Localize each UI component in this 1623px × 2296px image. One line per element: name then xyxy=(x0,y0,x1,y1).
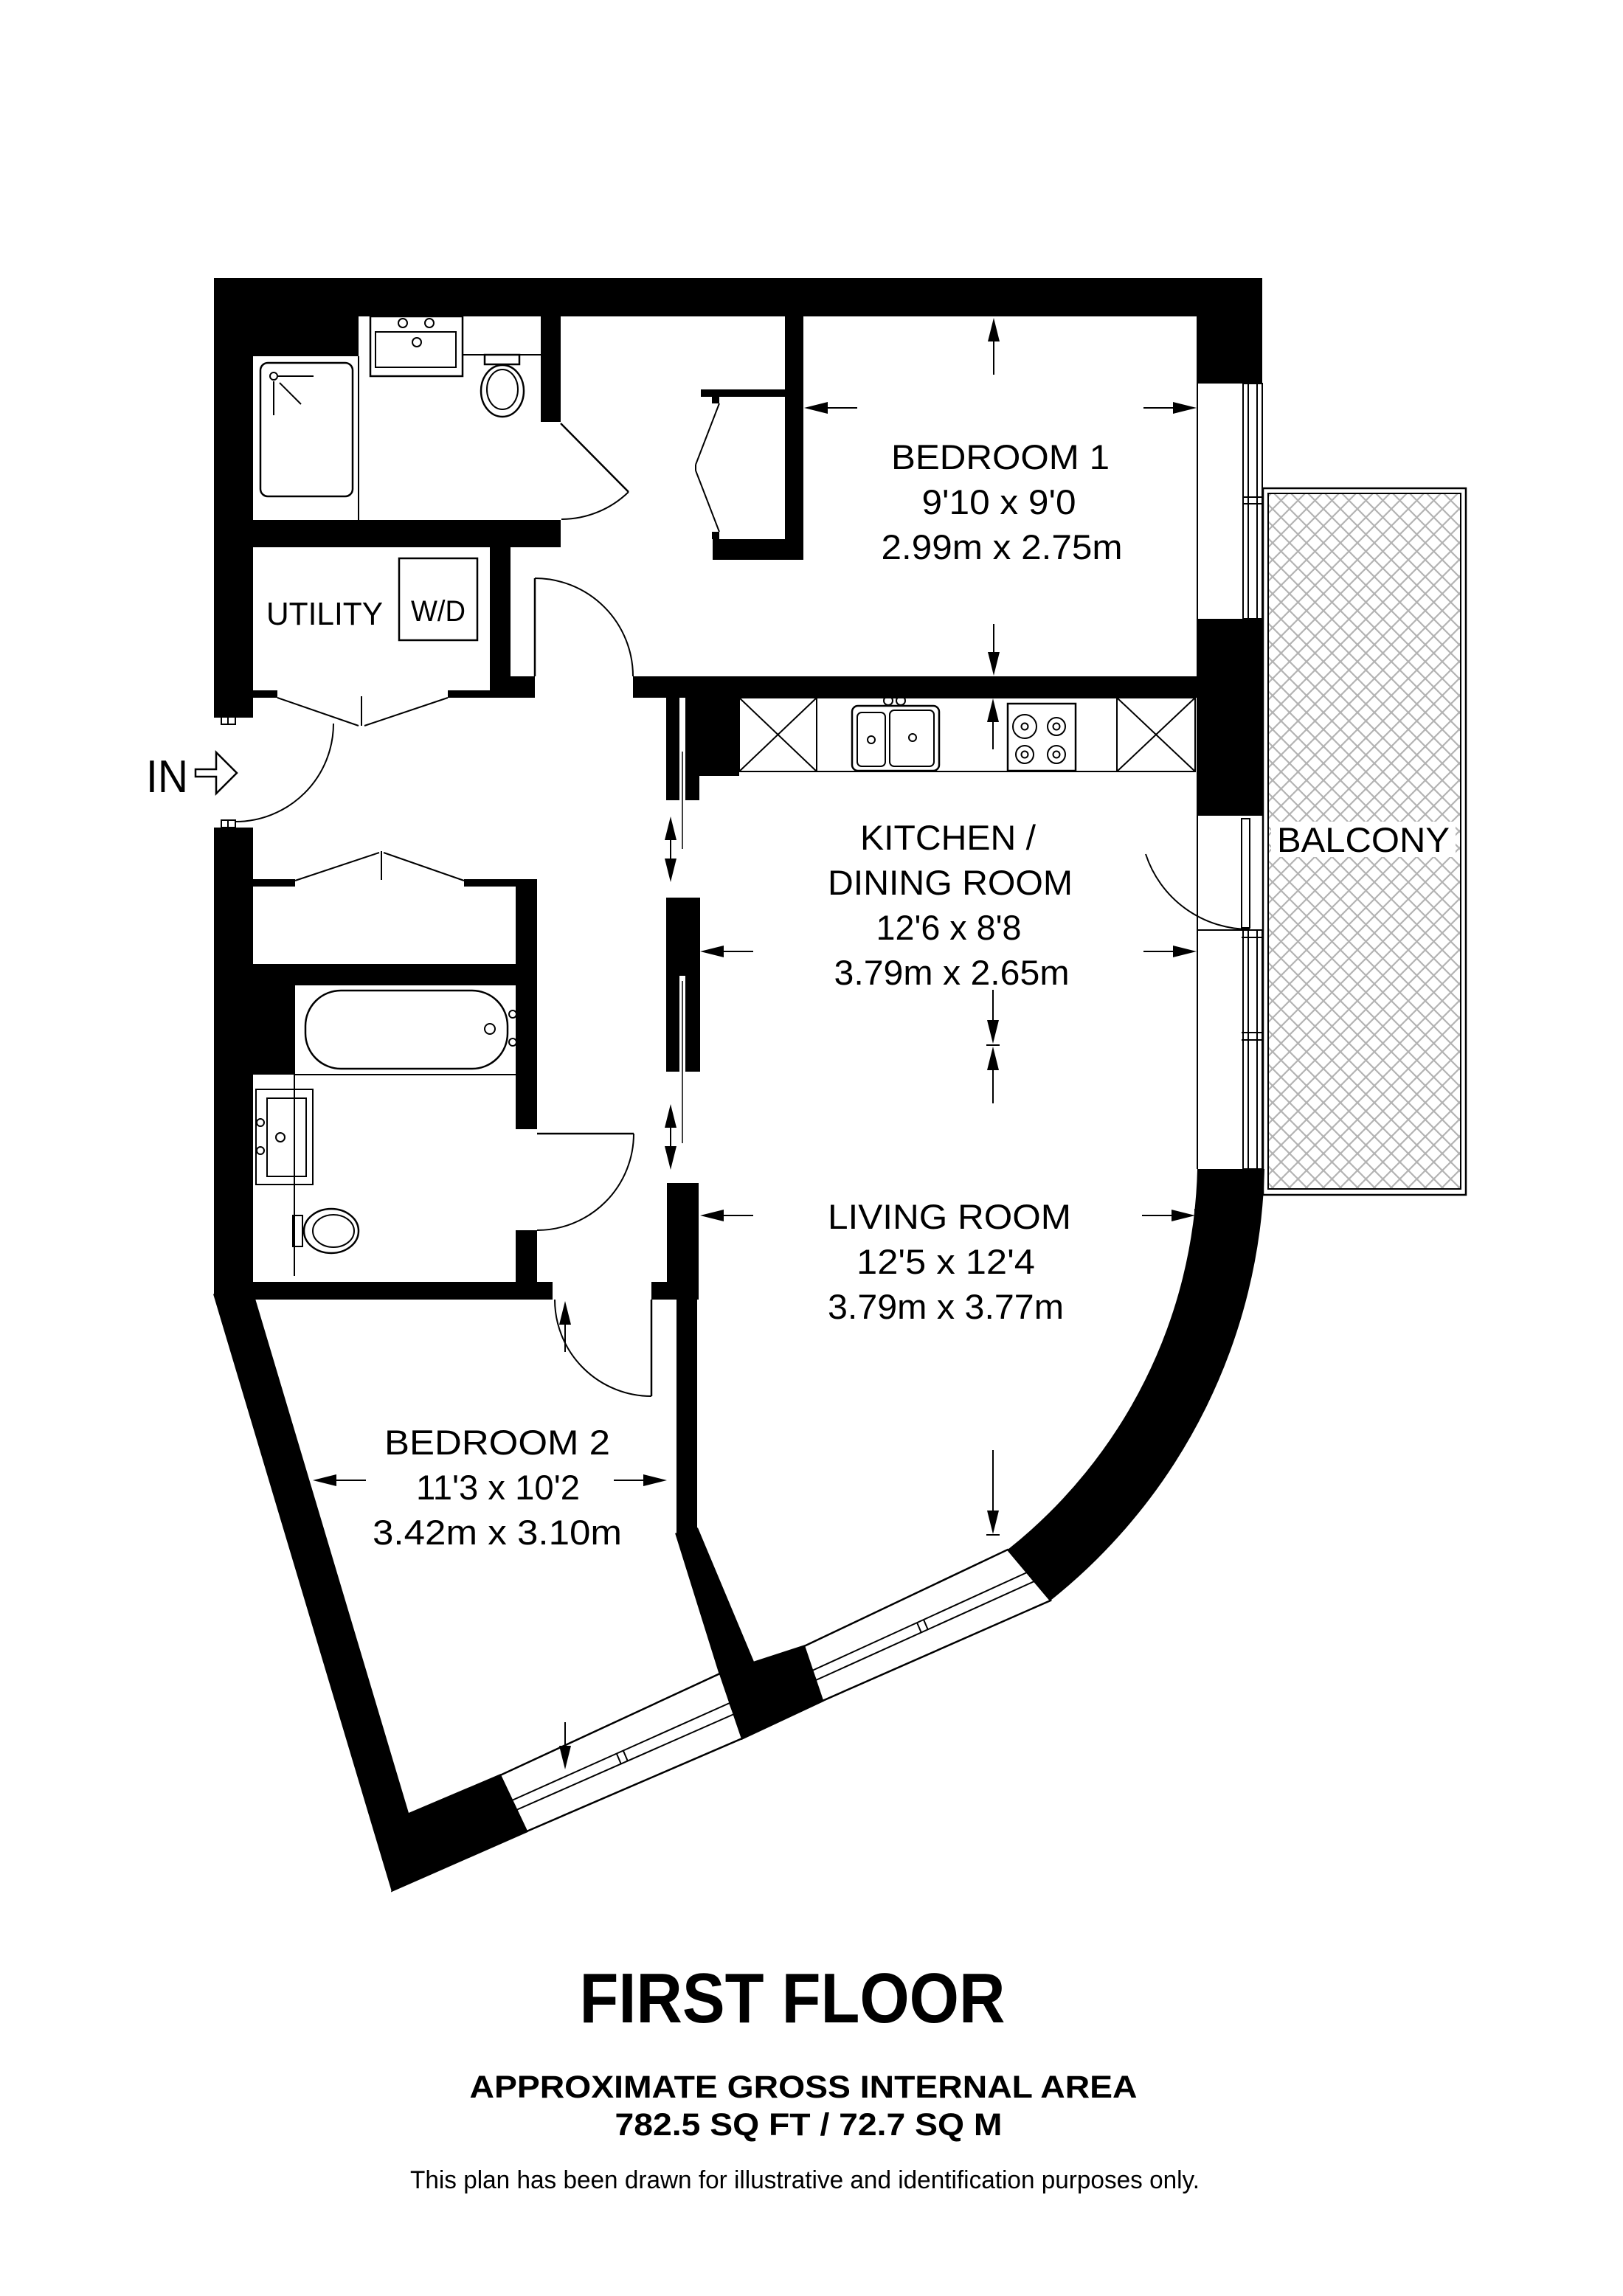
svg-text:BEDROOM 1: BEDROOM 1 xyxy=(891,437,1110,476)
svg-text:9'10 x 9'0: 9'10 x 9'0 xyxy=(922,482,1076,521)
svg-text:LIVING ROOM: LIVING ROOM xyxy=(828,1197,1071,1236)
svg-text:KITCHEN /: KITCHEN / xyxy=(860,818,1037,857)
svg-text:W/D: W/D xyxy=(411,595,466,628)
svg-text:FIRST FLOOR: FIRST FLOOR xyxy=(580,1959,1006,2038)
svg-text:3.79m x 2.65m: 3.79m x 2.65m xyxy=(834,953,1070,992)
svg-text:BALCONY: BALCONY xyxy=(1277,820,1450,859)
svg-text:UTILITY: UTILITY xyxy=(266,596,383,632)
svg-text:APPROXIMATE GROSS INTERNAL ARE: APPROXIMATE GROSS INTERNAL AREA xyxy=(470,2070,1138,2105)
svg-text:3.42m x 3.10m: 3.42m x 3.10m xyxy=(373,1513,622,1552)
svg-text:IN: IN xyxy=(146,752,188,802)
svg-text:782.5 SQ FT / 72.7 SQ M: 782.5 SQ FT / 72.7 SQ M xyxy=(615,2107,1003,2143)
svg-text:DINING ROOM: DINING ROOM xyxy=(828,863,1073,902)
svg-text:12'6 x 8'8: 12'6 x 8'8 xyxy=(876,908,1022,947)
svg-text:BEDROOM 2: BEDROOM 2 xyxy=(384,1423,610,1462)
svg-text:11'3 x 10'2: 11'3 x 10'2 xyxy=(416,1468,580,1507)
svg-text:12'5 x 12'4: 12'5 x 12'4 xyxy=(857,1242,1035,1281)
svg-text:3.79m x 3.77m: 3.79m x 3.77m xyxy=(828,1287,1064,1326)
svg-text:This plan has been drawn for i: This plan has been drawn for illustrativ… xyxy=(410,2166,1200,2194)
svg-text:2.99m x 2.75m: 2.99m x 2.75m xyxy=(882,527,1123,566)
